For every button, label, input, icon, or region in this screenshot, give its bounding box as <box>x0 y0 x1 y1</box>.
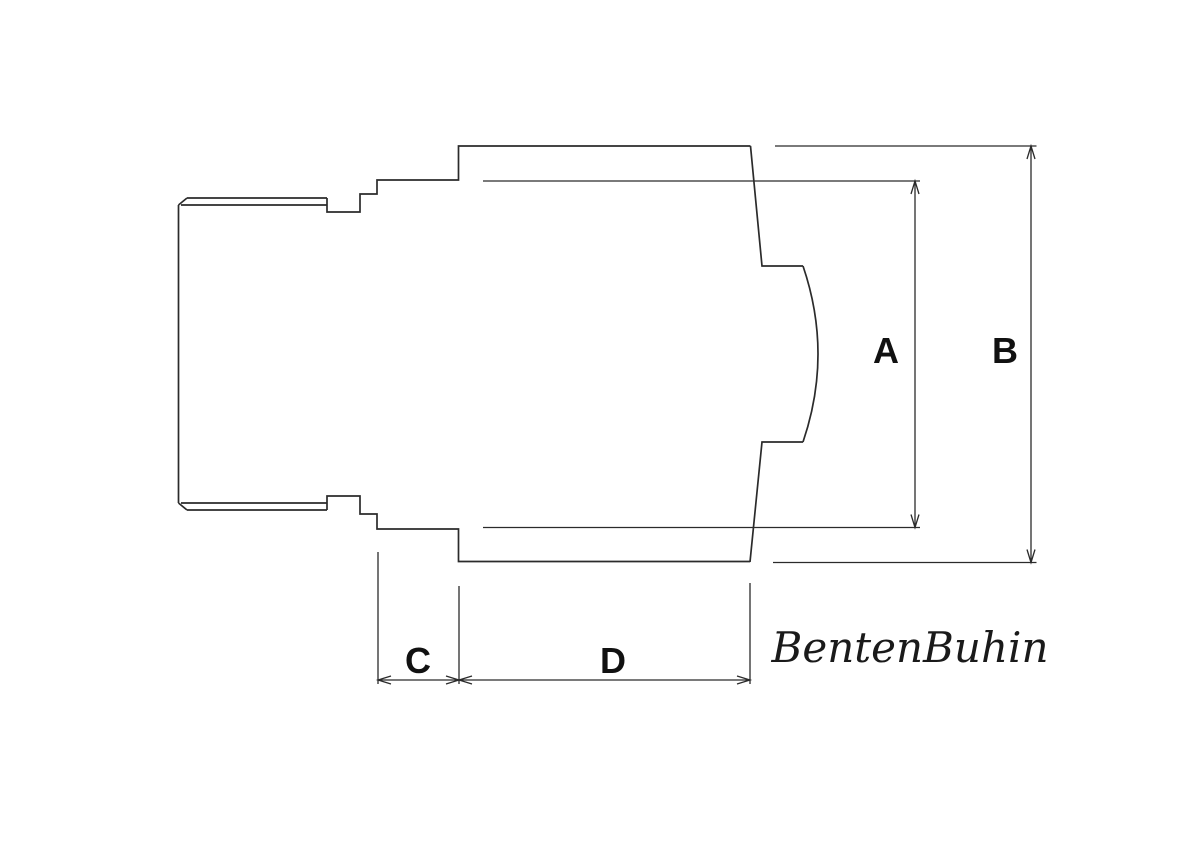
drawing-canvas: A B C D BentenBuhin <box>0 0 1200 848</box>
canvas-background <box>0 0 1200 848</box>
dimension-b-label: B <box>992 330 1018 371</box>
technical-drawing-svg: A B C D BentenBuhin <box>0 0 1200 848</box>
brand-signature: BentenBuhin <box>771 623 1049 672</box>
dimension-c-label: C <box>405 640 431 681</box>
dimension-d-label: D <box>600 640 626 681</box>
dimension-a-label: A <box>873 330 899 371</box>
